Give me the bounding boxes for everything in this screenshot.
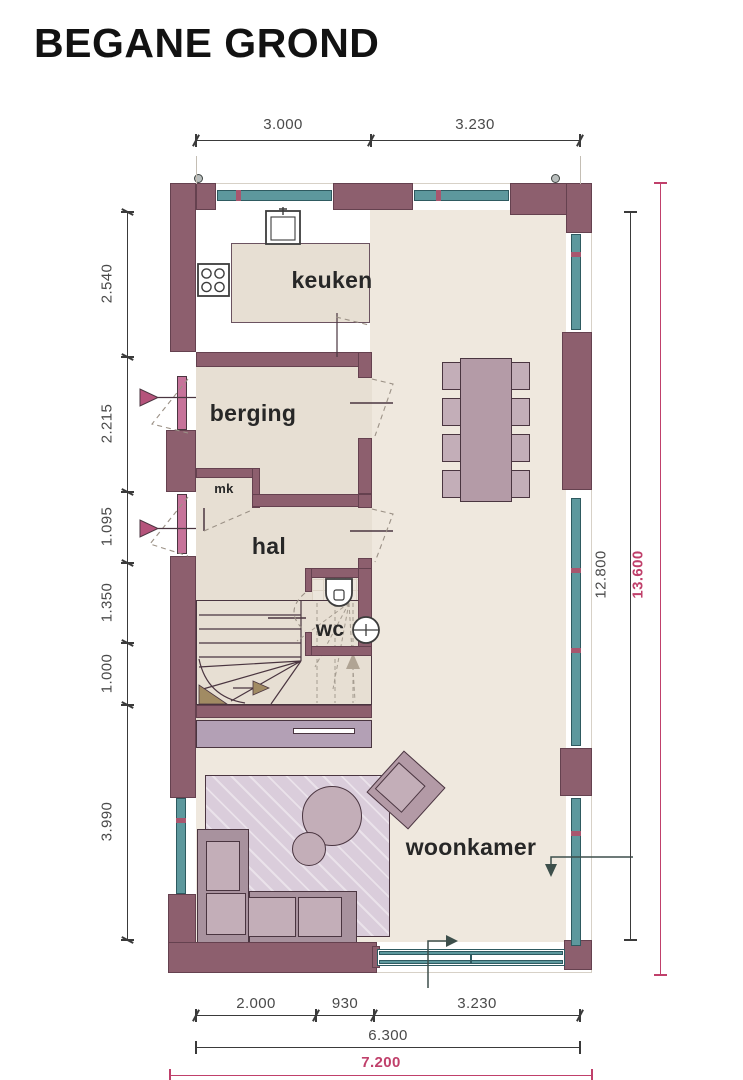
sofa-cushion bbox=[206, 893, 246, 935]
room-label-keuken: keuken bbox=[262, 267, 402, 294]
dimension-label: 3.230 bbox=[415, 116, 535, 133]
window-mullion bbox=[436, 190, 441, 201]
wall-segment bbox=[170, 183, 196, 352]
dining-chair bbox=[510, 470, 530, 498]
dining-chair bbox=[442, 398, 462, 426]
dimension-line bbox=[196, 140, 580, 141]
vent-icon bbox=[551, 174, 560, 183]
room-label-wc: wc bbox=[300, 618, 360, 642]
dining-chair bbox=[442, 470, 462, 498]
window-mullion bbox=[176, 818, 186, 823]
window-mullion bbox=[571, 252, 581, 257]
window bbox=[571, 798, 581, 946]
dining-chair bbox=[510, 362, 530, 390]
dimension-line bbox=[196, 1015, 580, 1016]
wall-segment bbox=[562, 332, 592, 490]
wall-segment bbox=[252, 494, 372, 507]
dimension-tick bbox=[654, 182, 667, 184]
room-label-mk: mk bbox=[196, 481, 252, 496]
sofa-cushion bbox=[206, 841, 240, 891]
coffee-table-small bbox=[292, 832, 326, 866]
wall-segment bbox=[333, 183, 413, 210]
dimension-label: 3.230 bbox=[417, 995, 537, 1012]
dining-chair bbox=[442, 434, 462, 462]
dimension-label: 6.300 bbox=[328, 1027, 448, 1044]
wall-segment bbox=[566, 183, 592, 233]
dimension-line bbox=[127, 212, 128, 940]
extension-line bbox=[196, 156, 197, 184]
wall-segment bbox=[196, 183, 216, 210]
dimension-line-accent bbox=[170, 1075, 592, 1076]
room-label-hal: hal bbox=[199, 533, 339, 560]
window-mullion bbox=[571, 831, 581, 836]
dimension-label: 3.990 bbox=[99, 762, 116, 882]
wall-segment bbox=[358, 494, 372, 508]
dimension-line-accent bbox=[660, 183, 661, 975]
sideboard bbox=[196, 720, 372, 748]
dimension-label: 2.215 bbox=[99, 364, 116, 484]
dimension-tick bbox=[624, 211, 637, 213]
page-title: BEGANE GROND bbox=[34, 20, 379, 67]
window-mullion bbox=[571, 568, 581, 573]
sliding-door-handle bbox=[470, 954, 472, 963]
dimension-label-accent: 13.600 bbox=[630, 515, 647, 635]
dining-chair bbox=[510, 398, 530, 426]
window-mullion bbox=[236, 190, 241, 201]
dining-chair bbox=[442, 362, 462, 390]
dimension-label-accent: 7.200 bbox=[321, 1054, 441, 1071]
stair-up-arrow-icon bbox=[253, 681, 269, 695]
wall-segment bbox=[305, 568, 312, 592]
dimension-label: 1.000 bbox=[99, 614, 116, 734]
wall-segment bbox=[358, 352, 372, 378]
window bbox=[217, 190, 332, 201]
wall-segment bbox=[358, 568, 372, 656]
window bbox=[571, 234, 581, 330]
extension-line bbox=[580, 156, 581, 184]
dining-table bbox=[460, 358, 512, 502]
wall-segment bbox=[166, 430, 196, 492]
sofa-cushion bbox=[298, 897, 342, 937]
dimension-tick bbox=[195, 1041, 197, 1054]
dining-chair bbox=[510, 434, 530, 462]
dimension-tick bbox=[591, 1069, 593, 1080]
dimension-label: 2.540 bbox=[99, 224, 116, 344]
wall-segment bbox=[168, 942, 377, 973]
sofa-cushion bbox=[248, 897, 296, 937]
wall-segment bbox=[170, 556, 196, 798]
front-door bbox=[177, 494, 187, 554]
window bbox=[176, 798, 186, 894]
dimension-tick bbox=[624, 939, 637, 941]
wall-segment bbox=[305, 646, 372, 656]
wall-segment bbox=[196, 468, 258, 478]
room-label-berging: berging bbox=[183, 400, 323, 427]
dimension-tick bbox=[579, 1041, 581, 1054]
room-label-woonkamer: woonkamer bbox=[391, 834, 551, 861]
wall-segment bbox=[560, 748, 592, 796]
dimension-label: 930 bbox=[285, 995, 405, 1012]
wall-segment bbox=[358, 438, 372, 494]
window bbox=[414, 190, 509, 201]
dimension-line bbox=[196, 1047, 580, 1048]
wall-segment bbox=[196, 705, 372, 718]
dimension-label: 12.800 bbox=[593, 515, 610, 635]
dimension-label: 3.000 bbox=[223, 116, 343, 133]
dimension-tick bbox=[169, 1069, 171, 1080]
wall-segment bbox=[196, 352, 372, 367]
window-mullion bbox=[571, 648, 581, 653]
sideboard-slot bbox=[293, 728, 355, 734]
dimension-tick bbox=[654, 974, 667, 976]
floor-plan-page: BEGANE GROND bbox=[0, 0, 743, 1080]
window bbox=[571, 498, 581, 746]
